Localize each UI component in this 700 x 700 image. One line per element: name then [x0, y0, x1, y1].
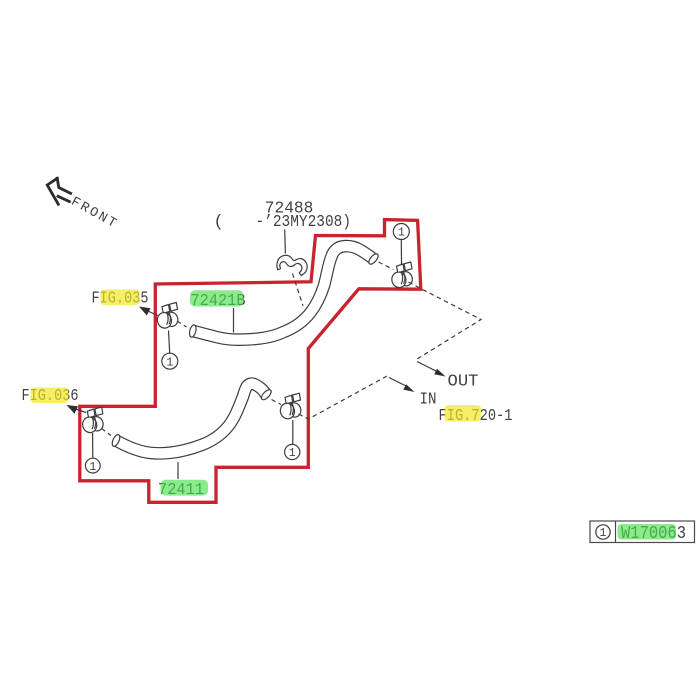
svg-text:1: 1 [398, 227, 405, 240]
svg-text:1: 1 [600, 527, 607, 540]
svg-text:(: ( [214, 213, 224, 232]
svg-text:1: 1 [166, 356, 173, 369]
svg-text:-’23MY2308): -’23MY2308) [256, 213, 352, 232]
svg-text:IN: IN [420, 391, 437, 410]
svg-text:OUT: OUT [448, 373, 479, 392]
svg-text:1: 1 [289, 447, 296, 460]
svg-text:1: 1 [89, 461, 96, 474]
